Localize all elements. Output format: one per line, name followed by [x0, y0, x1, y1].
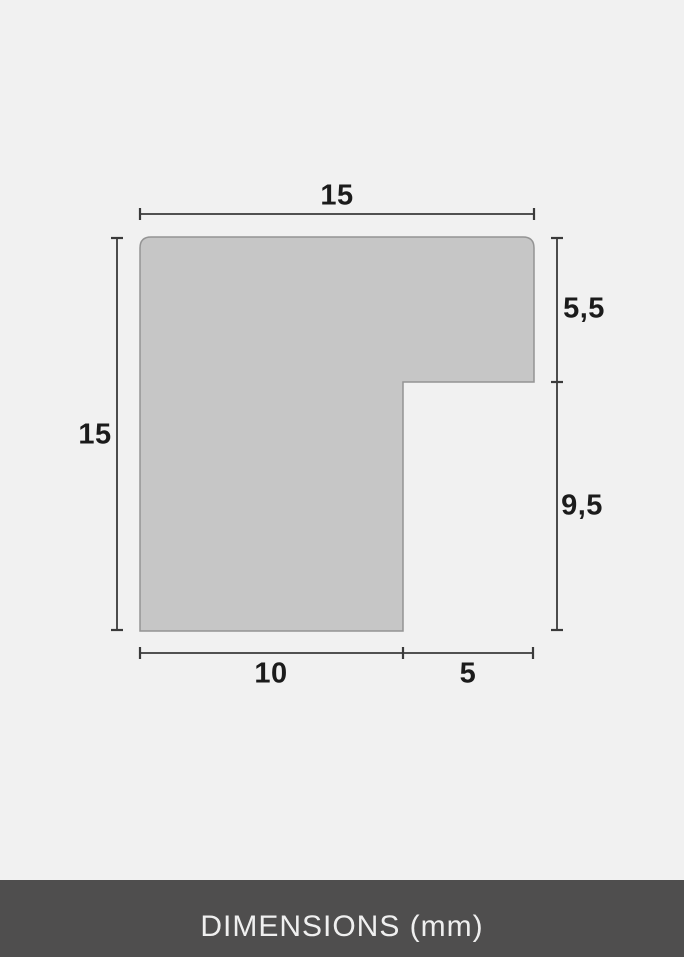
dim-label-right-lower: 9,5 — [561, 490, 603, 523]
page: 15 15 5,5 9,5 10 5 DIMENSIONS (mm) — [0, 0, 684, 957]
dim-label-top-width: 15 — [320, 180, 353, 213]
dim-label-right-upper: 5,5 — [563, 293, 605, 326]
footer-bar: DIMENSIONS (mm) — [0, 880, 684, 957]
dim-right — [551, 238, 563, 630]
dim-left — [111, 238, 123, 630]
dim-label-left-height: 15 — [78, 419, 111, 452]
dim-label-bottom-right: 5 — [460, 658, 477, 691]
footer-caption: DIMENSIONS (mm) — [200, 910, 483, 944]
dim-label-bottom-left: 10 — [254, 658, 287, 691]
profile-shape — [140, 237, 534, 631]
frame-profile-dimension-diagram: 15 15 5,5 9,5 10 5 — [0, 0, 684, 880]
